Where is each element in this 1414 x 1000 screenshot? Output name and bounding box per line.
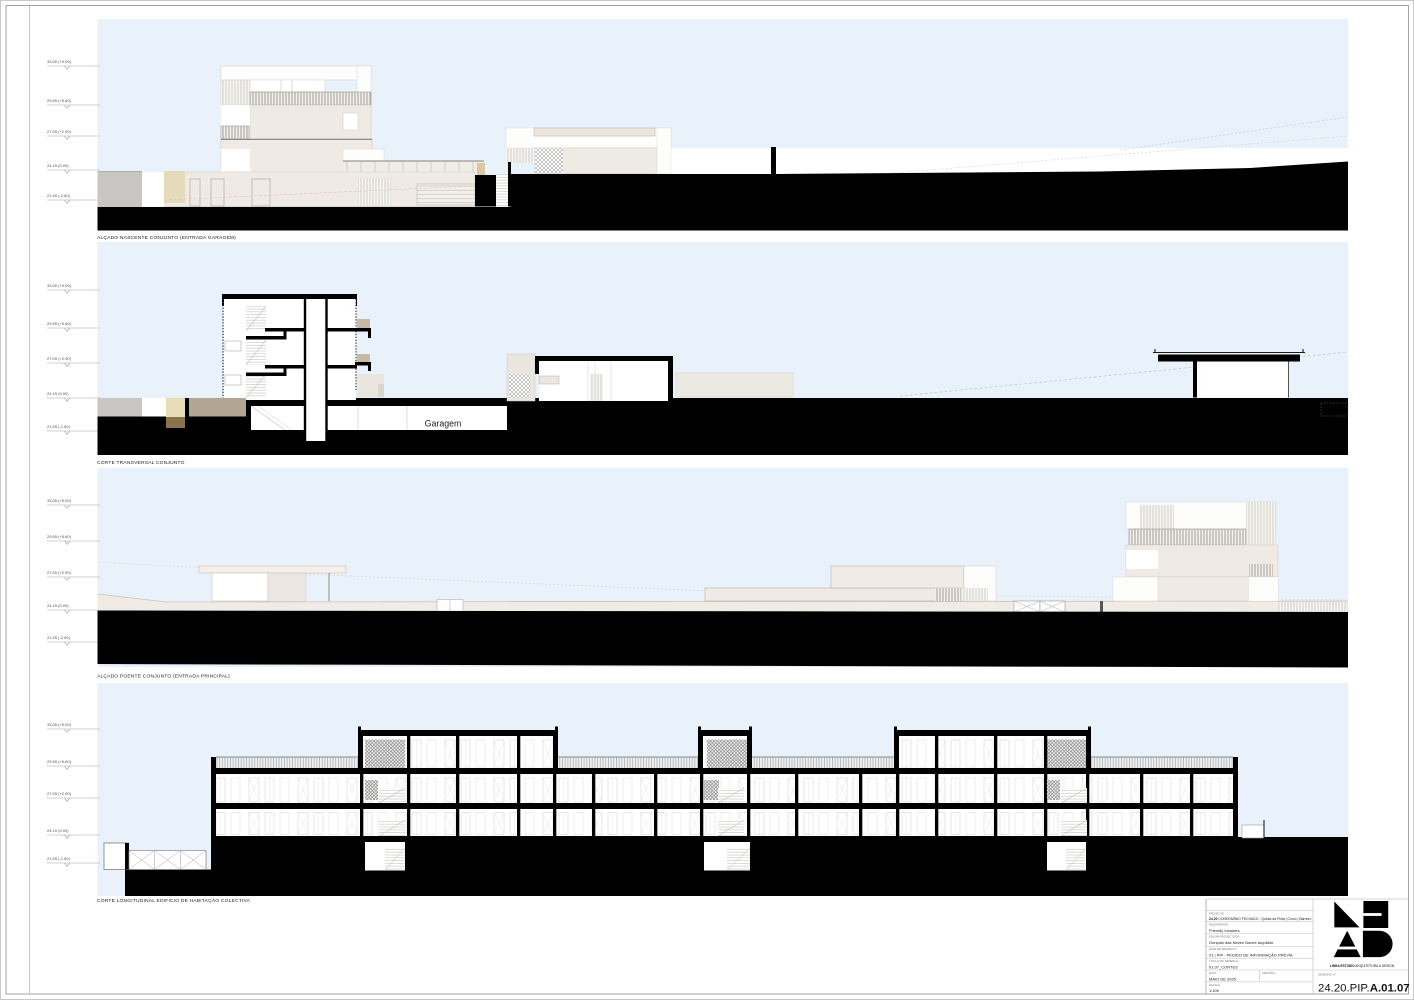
svg-text:REQUERENTE: REQUERENTE bbox=[1209, 923, 1229, 927]
svg-text:24.15 (0.00): 24.15 (0.00) bbox=[47, 603, 69, 608]
svg-text:21.55 (-2.60): 21.55 (-2.60) bbox=[47, 856, 71, 861]
svg-text:CORTE LONGITUDINAL EDIFÍCIO DE: CORTE LONGITUDINAL EDIFÍCIO DE HABITAÇÃO… bbox=[97, 897, 251, 904]
svg-text:27.05 (+2.90): 27.05 (+2.90) bbox=[47, 129, 72, 134]
svg-text:ALÇADO POENTE CONJUNTO (ENTRAD: ALÇADO POENTE CONJUNTO (ENTRADA PRINCIPA… bbox=[97, 674, 230, 680]
svg-text:DATA: DATA bbox=[1209, 971, 1216, 975]
svg-text:29.65 (+5.60): 29.65 (+5.60) bbox=[47, 98, 72, 103]
svg-text:LINHA ESTÚDIO ARQUITETURA & DE: LINHA ESTÚDIO ARQUITETURA & DESIGN bbox=[1330, 963, 1395, 968]
svg-text:21.55 (-2.60): 21.55 (-2.60) bbox=[47, 193, 71, 198]
svg-text:ESCALA: ESCALA bbox=[1209, 983, 1220, 987]
svg-text:21.55 (-2.60): 21.55 (-2.60) bbox=[47, 424, 71, 429]
svg-text:Friendly Invaders: Friendly Invaders bbox=[1209, 928, 1240, 933]
svg-text:CORTE TRANSVERSAL CONJUNTO: CORTE TRANSVERSAL CONJUNTO bbox=[97, 460, 185, 466]
svg-text:EQUIPA PROJECTISTA: EQUIPA PROJECTISTA bbox=[1209, 934, 1239, 938]
svg-text:REVISÃO: REVISÃO bbox=[1263, 970, 1276, 975]
svg-text:33.05 (+9.00): 33.05 (+9.00) bbox=[47, 722, 72, 727]
svg-text:01 | PIP - PEDIDO DE INFORMAÇÃ: 01 | PIP - PEDIDO DE INFORMAÇÃO PRÉVIA bbox=[1209, 953, 1293, 958]
svg-text:ALÇADO NASCENTE CONJUNTO (ENTR: ALÇADO NASCENTE CONJUNTO (ENTRADA GARAGE… bbox=[97, 235, 236, 241]
svg-text:33.05 (+9.00): 33.05 (+9.00) bbox=[47, 498, 72, 503]
svg-text:29.65 (+5.60): 29.65 (+5.60) bbox=[47, 759, 72, 764]
svg-text:33.05 (+9.00): 33.05 (+9.00) bbox=[47, 283, 72, 288]
svg-text:21.55 (-2.60): 21.55 (-2.60) bbox=[47, 635, 71, 640]
svg-text:27.05 (+2.90): 27.05 (+2.90) bbox=[47, 791, 72, 796]
svg-text:27.05 (+2.90): 27.05 (+2.90) bbox=[47, 356, 72, 361]
svg-text:Gonçalo das Neves Nunes arquit: Gonçalo das Neves Nunes arquiteto bbox=[1209, 940, 1274, 945]
svg-text:1:100: 1:100 bbox=[1209, 988, 1220, 993]
svg-text:TÍTULO DO DESENHO: TÍTULO DO DESENHO bbox=[1209, 959, 1239, 963]
svg-text:29.65 (+5.60): 29.65 (+5.60) bbox=[47, 321, 72, 326]
svg-text:MAIO DE 2025: MAIO DE 2025 bbox=[1209, 976, 1237, 981]
svg-text:FASE DE PROJECTO: FASE DE PROJECTO bbox=[1209, 947, 1238, 951]
svg-text:24.15 (0.00): 24.15 (0.00) bbox=[47, 828, 69, 833]
svg-text:24.20 CONDOMÍNIO FECHADO - Qui: 24.20 CONDOMÍNIO FECHADO - Quinta da Pin… bbox=[1209, 917, 1312, 921]
svg-text:PROJECTO: PROJECTO bbox=[1209, 911, 1225, 915]
svg-text:01.07_CORTES: 01.07_CORTES bbox=[1209, 964, 1238, 969]
svg-text:29.65 (+5.60): 29.65 (+5.60) bbox=[47, 534, 72, 539]
svg-text:27.05 (+2.90): 27.05 (+2.90) bbox=[47, 570, 72, 575]
svg-text:DESENHO Nº: DESENHO Nº bbox=[1318, 972, 1336, 976]
svg-text:24.15 (0.00): 24.15 (0.00) bbox=[47, 391, 69, 396]
svg-text:24.20.PIP.A.01.07: 24.20.PIP.A.01.07 bbox=[1318, 983, 1410, 995]
svg-text:Garagem: Garagem bbox=[425, 419, 462, 429]
svg-text:33.05 (+9.00): 33.05 (+9.00) bbox=[47, 59, 72, 64]
svg-text:24.15 (0.00): 24.15 (0.00) bbox=[47, 163, 69, 168]
